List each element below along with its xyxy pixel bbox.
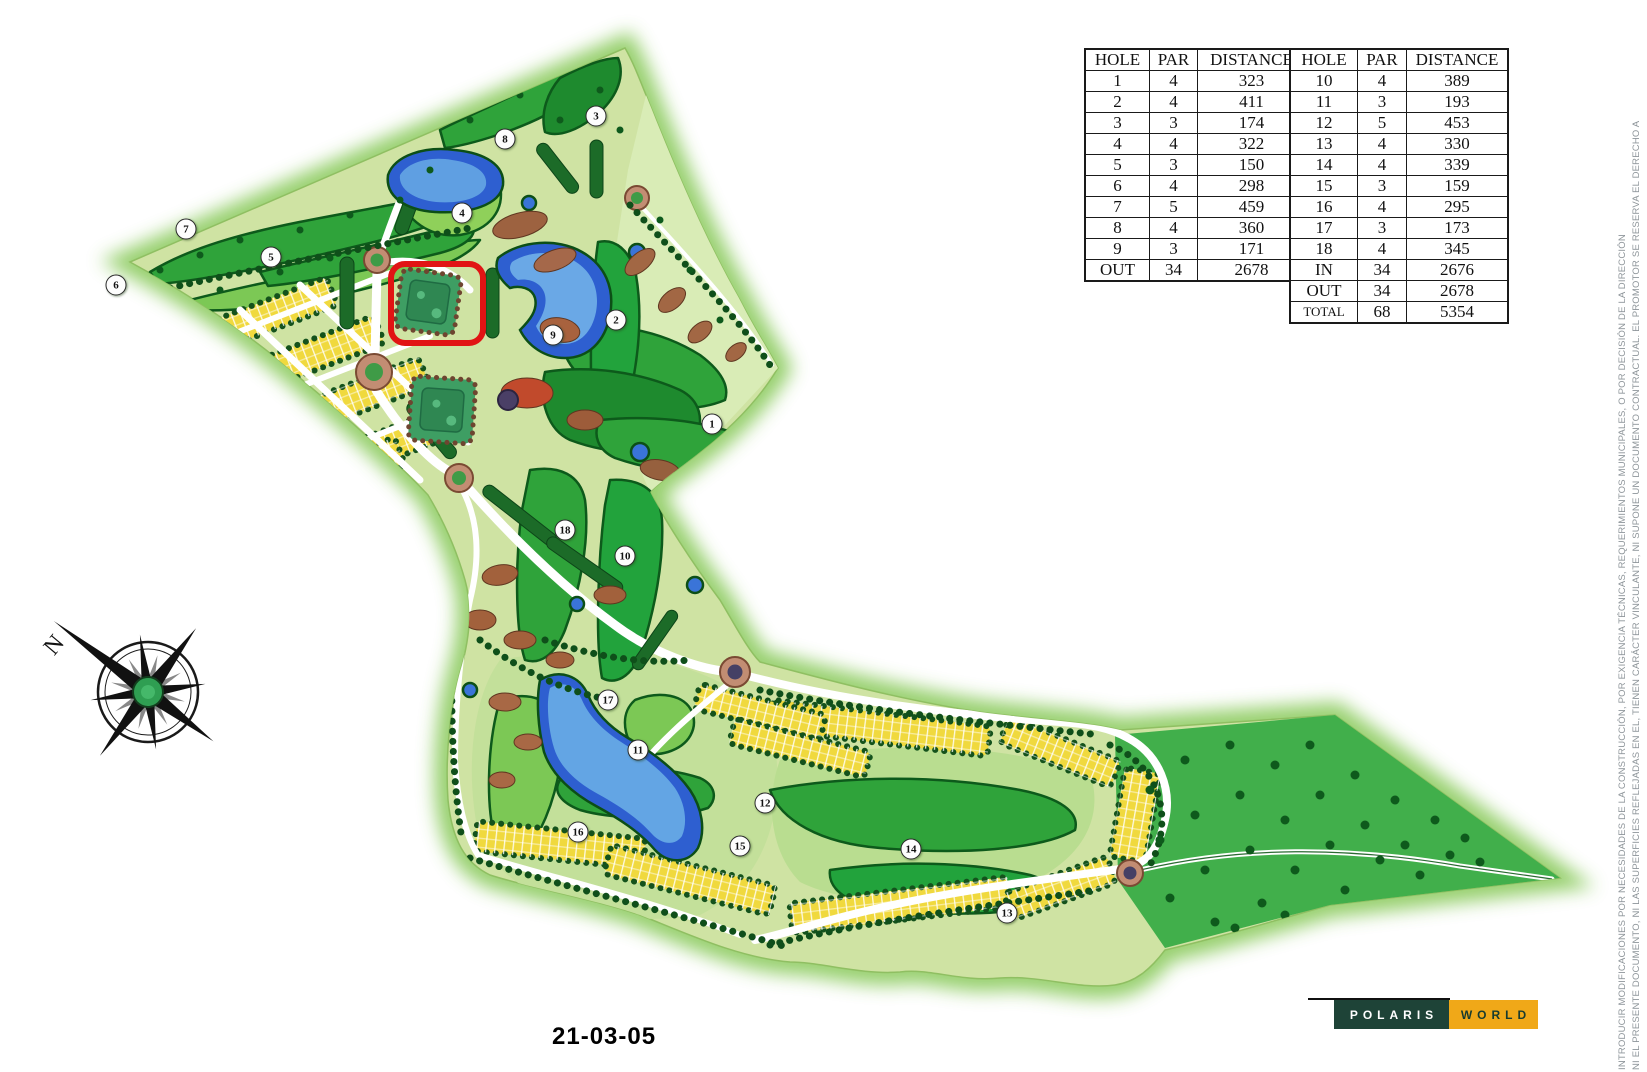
scorecard-cell: 4 — [1358, 71, 1407, 92]
hole-marker-8: 8 — [495, 129, 516, 150]
scorecard-row: 134330 — [1290, 134, 1508, 155]
scorecard-cell: 4 — [1358, 155, 1407, 176]
scorecard-cell: 34 — [1358, 260, 1407, 281]
scorecard-cell: 13 — [1290, 134, 1358, 155]
legal-disclaimer-line1: NI EL PRESENTE DOCUMENTO, NI LAS SUPERFI… — [1630, 0, 1644, 1070]
scorecard-row: 93171 — [1085, 239, 1306, 260]
scorecard-cell: 173 — [1407, 218, 1509, 239]
plan-date: 21-03-05 — [552, 1023, 656, 1051]
scorecard-cell: 3 — [1150, 113, 1198, 134]
scorecard-row: OUT342678 — [1290, 281, 1508, 302]
scorecard-cell: 330 — [1407, 134, 1509, 155]
scorecard-row: 104389 — [1290, 71, 1508, 92]
scorecard-cell: 6 — [1085, 176, 1150, 197]
scorecard-cell: 5 — [1358, 113, 1407, 134]
scorecard-cell: 4 — [1150, 71, 1198, 92]
scorecard-row: 184345 — [1290, 239, 1508, 260]
scorecard-cell: 193 — [1407, 92, 1509, 113]
scorecard-header-row: HOLEPARDISTANCE — [1290, 49, 1508, 71]
scorecard-cell: 7 — [1085, 197, 1150, 218]
scorecard-cell: 389 — [1407, 71, 1509, 92]
scorecard-cell: 3 — [1358, 92, 1407, 113]
scorecard-cell: 10 — [1290, 71, 1358, 92]
scorecard-row: 44322 — [1085, 134, 1306, 155]
scorecard-cell: 3 — [1358, 176, 1407, 197]
scorecard-cell: 2 — [1085, 92, 1150, 113]
scorecard-row: IN342676 — [1290, 260, 1508, 281]
highlight-rectangle — [388, 261, 486, 346]
scorecard-cell: 17 — [1290, 218, 1358, 239]
scorecard-row: 53150 — [1085, 155, 1306, 176]
scorecard-cell: 5354 — [1407, 302, 1509, 324]
scorecard-row: 24411 — [1085, 92, 1306, 113]
scorecard-cell: DISTANCE — [1407, 49, 1509, 71]
scorecard-cell: 15 — [1290, 176, 1358, 197]
scorecard-row: 84360 — [1085, 218, 1306, 239]
scorecard-cell: 18 — [1290, 239, 1358, 260]
scorecard-cell: PAR — [1150, 49, 1198, 71]
scorecard-cell: 339 — [1407, 155, 1509, 176]
logo-polaris-block: POLARIS — [1334, 1000, 1449, 1029]
scorecard-cell: 3 — [1150, 155, 1198, 176]
scorecard-row: 173173 — [1290, 218, 1508, 239]
scorecard-header-row: HOLEPARDISTANCE — [1085, 49, 1306, 71]
master-plan-sheet: 123456789101112131415161718 N HOLEPARDIS… — [0, 0, 1647, 1072]
hole-marker-17: 17 — [598, 690, 619, 711]
logo-world-block: WORLD — [1449, 1000, 1538, 1029]
scorecard-cell: 2676 — [1407, 260, 1509, 281]
hole-marker-9: 9 — [543, 325, 564, 346]
scorecard-row: 113193 — [1290, 92, 1508, 113]
scorecard-row: 153159 — [1290, 176, 1508, 197]
hole-marker-11: 11 — [628, 740, 649, 761]
scorecard-cell: IN — [1290, 260, 1358, 281]
scorecard-cell: 9 — [1085, 239, 1150, 260]
hole-marker-16: 16 — [568, 822, 589, 843]
scorecard-cell: 8 — [1085, 218, 1150, 239]
scorecard-cell: 2678 — [1407, 281, 1509, 302]
scorecard-cell: 11 — [1290, 92, 1358, 113]
scorecard-cell: HOLE — [1290, 49, 1358, 71]
hole-marker-12: 12 — [755, 793, 776, 814]
hole-marker-14: 14 — [901, 839, 922, 860]
scorecard-row: 14323 — [1085, 71, 1306, 92]
scorecard-cell: 4 — [1150, 134, 1198, 155]
hole-marker-4: 4 — [452, 203, 473, 224]
scorecard-cell: 3 — [1150, 239, 1198, 260]
hole-marker-2: 2 — [606, 310, 627, 331]
hole-marker-10: 10 — [615, 546, 636, 567]
hole-marker-18: 18 — [555, 520, 576, 541]
scorecard-cell: 295 — [1407, 197, 1509, 218]
scorecard-cell: 4 — [1085, 134, 1150, 155]
scorecard-row: TOTAL685354 — [1290, 302, 1508, 324]
scorecard-cell: PAR — [1358, 49, 1407, 71]
scorecard-cell: TOTAL — [1290, 302, 1358, 324]
scorecard-cell: 12 — [1290, 113, 1358, 134]
scorecard-cell: OUT — [1085, 260, 1150, 282]
hole-marker-15: 15 — [730, 836, 751, 857]
scorecard-cell: 68 — [1358, 302, 1407, 324]
scorecard-row: OUT342678 — [1085, 260, 1306, 282]
scorecard-cell: 34 — [1358, 281, 1407, 302]
hole-marker-13: 13 — [997, 903, 1018, 924]
scorecard-cell: 5 — [1085, 155, 1150, 176]
scorecard-cell: 345 — [1407, 239, 1509, 260]
scorecard-cell: 4 — [1358, 134, 1407, 155]
scorecard-cell: 4 — [1150, 218, 1198, 239]
compass-rose — [6, 557, 262, 805]
scorecard-cell: HOLE — [1085, 49, 1150, 71]
hole-marker-7: 7 — [176, 219, 197, 240]
scorecard-cell: 3 — [1358, 218, 1407, 239]
scorecard-row: 144339 — [1290, 155, 1508, 176]
hole-marker-5: 5 — [261, 247, 282, 268]
scorecard-back-nine: HOLEPARDISTANCE1043891131931254531343301… — [1289, 48, 1509, 324]
scorecard-cell: 5 — [1150, 197, 1198, 218]
scorecard-row: 33174 — [1085, 113, 1306, 134]
scorecard-cell: 159 — [1407, 176, 1509, 197]
scorecard-row: 64298 — [1085, 176, 1306, 197]
scorecard-cell: 34 — [1150, 260, 1198, 282]
scorecard-cell: 16 — [1290, 197, 1358, 218]
legal-disclaimer-line2: INTRODUCIR MODIFICACIONES POR NECESIDADE… — [1616, 0, 1630, 1070]
polaris-world-logo: POLARIS WORLD — [1308, 998, 1538, 1031]
scorecard-row: 125453 — [1290, 113, 1508, 134]
scorecard-cell: 1 — [1085, 71, 1150, 92]
scorecard-row: 164295 — [1290, 197, 1508, 218]
legal-disclaimer: INTRODUCIR MODIFICACIONES POR NECESIDADE… — [1616, 0, 1644, 1070]
scorecard-cell: OUT — [1290, 281, 1358, 302]
hole-marker-3: 3 — [586, 106, 607, 127]
scorecard-cell: 4 — [1150, 92, 1198, 113]
scorecard-cell: 4 — [1150, 176, 1198, 197]
scorecard-cell: 4 — [1358, 239, 1407, 260]
scorecard-cell: 4 — [1358, 197, 1407, 218]
hole-marker-6: 6 — [106, 275, 127, 296]
scorecard-cell: 14 — [1290, 155, 1358, 176]
hole-marker-1: 1 — [702, 414, 723, 435]
scorecard-cell: 453 — [1407, 113, 1509, 134]
scorecard-row: 75459 — [1085, 197, 1306, 218]
scorecard-cell: 3 — [1085, 113, 1150, 134]
scorecard-front-nine: HOLEPARDISTANCE1432324411331744432253150… — [1084, 48, 1307, 282]
